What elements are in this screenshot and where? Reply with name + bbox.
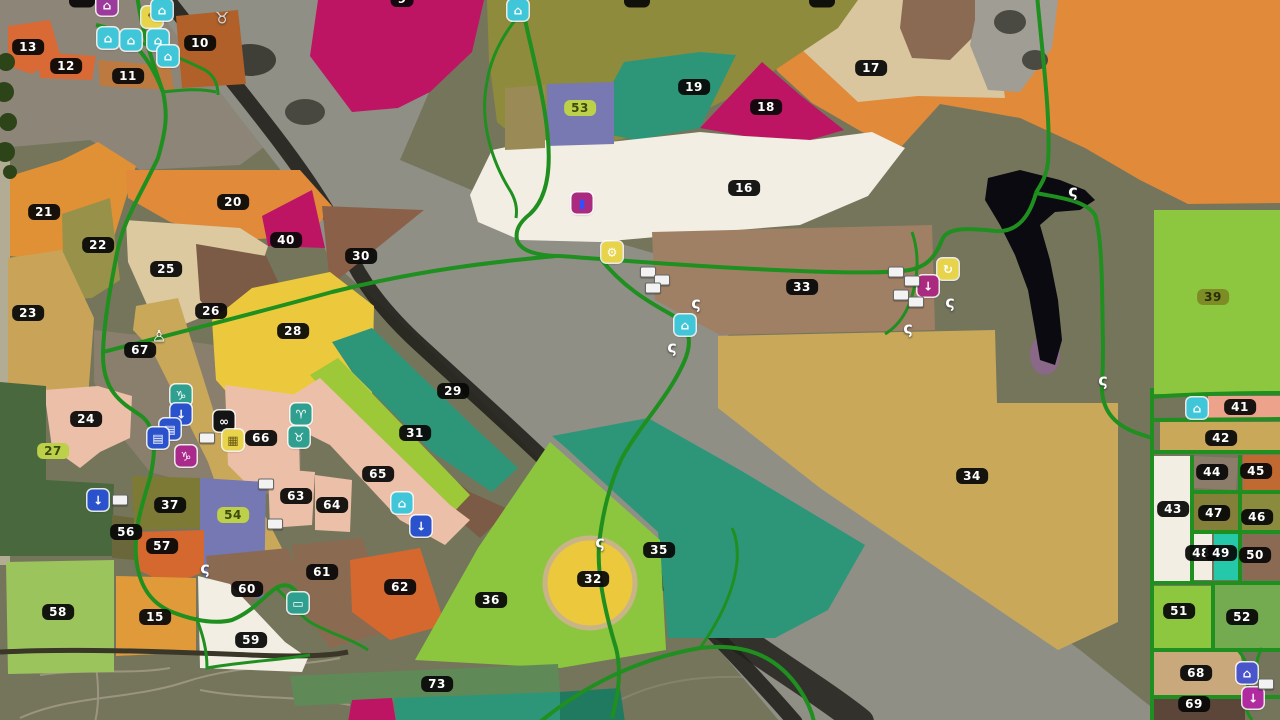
sell-point-icon-glyph: ↓ [923,280,933,292]
field-label-50[interactable]: 50 [1239,547,1271,563]
delivery-point-icon[interactable]: ↓ [411,516,432,537]
player-marker-icon[interactable]: ς [1098,371,1107,390]
road [1150,419,1280,420]
delivery-point-icon[interactable]: ↓ [88,490,109,511]
field-label-9[interactable]: 9 [391,0,414,7]
river-rocks [285,99,325,125]
binoculars-icon[interactable]: ∞ [214,411,235,432]
animal-pen-sheep-icon-glyph: ♈ [296,408,307,420]
reset-icon-glyph: ↻ [943,263,953,275]
greenhouse-icon[interactable]: ⌂ [158,46,179,67]
animal-dealer-icon-glyph: ♑ [181,450,192,462]
field-label-62[interactable]: 62 [384,579,416,595]
animal-pen-cow-icon-glyph: ♉ [294,431,305,443]
fuel-station-icon-glyph: ▮ [579,197,586,209]
farm-map: 9101112131516171819202122232425262728293… [0,0,1280,720]
tractor-station-icon[interactable]: ▭ [288,593,309,614]
field-label-12[interactable]: 12 [50,58,82,74]
field-label-20[interactable]: 20 [217,194,249,210]
field-label-18[interactable]: 18 [750,99,782,115]
field-label-24[interactable]: 24 [70,411,102,427]
vehicle-icon[interactable] [267,519,283,530]
field-label-65[interactable]: 65 [362,466,394,482]
greenhouse-icon[interactable]: ⌂ [98,28,119,49]
greenhouse-icon[interactable]: ⌂ [1187,398,1208,419]
field-label-43[interactable]: 43 [1157,501,1189,517]
field-label-41[interactable]: 41 [1224,399,1256,415]
animal-pen-sheep-icon[interactable]: ♈ [291,404,312,425]
tractor-station-icon-glyph: ▭ [292,597,303,609]
tree [3,165,17,179]
field-label-63[interactable]: 63 [280,488,312,504]
field-label-21[interactable]: 21 [28,204,60,220]
water-station-icon-glyph: ⌂ [1243,667,1252,679]
vehicle-icon[interactable] [258,479,274,490]
field-label-61[interactable]: 61 [306,564,338,580]
unload-point-icon-glyph: ↓ [1248,692,1258,704]
field-label-45[interactable]: 45 [1240,463,1272,479]
player-marker-icon[interactable]: ς [1068,182,1077,201]
field-label-16[interactable]: 16 [728,180,760,196]
vehicle-icon[interactable] [112,495,128,506]
greenhouse-icon-glyph: ⌂ [514,4,523,16]
field-label-11[interactable]: 11 [112,68,144,84]
greenhouse-icon-glyph: ⌂ [398,497,407,509]
player-marker-icon[interactable]: ς [595,533,604,552]
unload-point-icon[interactable]: ↓ [1243,688,1264,709]
field-label-64[interactable]: 64 [316,497,348,513]
field-label-36[interactable]: 36 [475,592,507,608]
animal-pen-cow-icon[interactable]: ♉ [289,427,310,448]
field-label-59[interactable]: 59 [235,632,267,648]
field-label-17[interactable]: 17 [855,60,887,76]
player-marker-icon[interactable]: ς [903,319,912,338]
field-label-26[interactable]: 26 [195,303,227,319]
field-label-30[interactable]: 30 [345,248,377,264]
field-label-cut[interactable] [809,0,835,8]
workshop-icon[interactable]: ⚙ [602,242,623,263]
purple-building-icon-glyph: ⌂ [103,0,112,11]
binoculars-icon-glyph: ∞ [219,415,229,427]
field-label-60[interactable]: 60 [231,581,263,597]
field-label-cut[interactable] [69,0,95,8]
field-label-34[interactable]: 34 [956,468,988,484]
field-label-15[interactable]: 15 [139,609,171,625]
harvester-icon[interactable] [908,297,924,308]
field-label-22[interactable]: 22 [82,237,114,253]
field-label-39[interactable]: 39 [1197,289,1229,305]
field-label-54[interactable]: 54 [217,507,249,523]
field-label-57[interactable]: 57 [146,538,178,554]
greenhouse-icon-glyph: ⌂ [1193,402,1202,414]
field-label-29[interactable]: 29 [437,383,469,399]
harvester-icon[interactable] [904,276,920,287]
delivery-point-icon[interactable]: ▤ [148,428,169,449]
vehicle-icon[interactable] [199,433,215,444]
field-label-66[interactable]: 66 [245,430,277,446]
harvester-icon[interactable] [893,290,909,301]
harvester-icon[interactable] [888,267,904,278]
field-43-area[interactable] [1154,456,1190,584]
field-label-27[interactable]: 27 [37,443,69,459]
field-label-68[interactable]: 68 [1180,665,1212,681]
bale-storage-icon[interactable]: ▦ [223,430,244,451]
production-icon[interactable]: ⌂ [675,315,696,336]
reset-icon[interactable]: ↻ [938,259,959,280]
greenhouse-icon-glyph: ⌂ [158,4,167,16]
animal-dealer-icon[interactable]: ♑ [176,446,197,467]
field-label-44[interactable]: 44 [1196,464,1228,480]
field-label-31[interactable]: 31 [399,425,431,441]
fuel-station-icon[interactable]: ▮ [572,193,593,214]
field-label-28[interactable]: 28 [277,323,309,339]
animal-pen-goat-icon[interactable]: ♑ [171,385,192,406]
greenhouse-icon[interactable]: ⌂ [508,0,529,21]
delivery-point-icon-glyph: ▤ [152,432,163,444]
greenhouse-icon[interactable]: ⌂ [121,30,142,51]
field-label-49[interactable]: 49 [1205,545,1237,561]
greenhouse-icon-glyph: ⌂ [127,34,136,46]
delivery-point-icon-glyph: ↓ [93,494,103,506]
purple-building-icon[interactable]: ⌂ [97,0,118,16]
player-marker-icon[interactable]: ς [667,338,676,357]
field-label-37[interactable]: 37 [154,497,186,513]
terrain-strip-magenta [348,698,396,720]
field-label-42[interactable]: 42 [1205,430,1237,446]
greenhouse-icon[interactable]: ⌂ [392,493,413,514]
field-label-69[interactable]: 69 [1178,696,1210,712]
cow-icon[interactable]: ♉ [215,9,229,28]
player-marker-icon[interactable]: ς [691,294,700,313]
field-label-52[interactable]: 52 [1226,609,1258,625]
field-label-51[interactable]: 51 [1163,603,1195,619]
field-label-33[interactable]: 33 [786,279,818,295]
map-canvas [0,0,1280,720]
field-label-46[interactable]: 46 [1241,509,1273,525]
field-label-53[interactable]: 53 [564,100,596,116]
field-label-40[interactable]: 40 [270,232,302,248]
harvester-icon[interactable] [1258,679,1274,690]
field-label-23[interactable]: 23 [12,305,44,321]
player-marker-icon[interactable]: ς [200,559,209,578]
field-label-25[interactable]: 25 [150,261,182,277]
water-station-icon[interactable]: ⌂ [1237,663,1258,684]
workshop-icon-glyph: ⚙ [607,246,618,258]
field-label-13[interactable]: 13 [12,39,44,55]
field-label-10[interactable]: 10 [184,35,216,51]
field-label-56[interactable]: 56 [110,524,142,540]
sell-point-icon[interactable]: ↓ [918,276,939,297]
bale-storage-icon-glyph: ▦ [227,434,238,446]
delivery-point-icon-glyph: ↓ [416,520,426,532]
production-icon-glyph: ⌂ [681,319,690,331]
field-label-35[interactable]: 35 [643,542,675,558]
hen-icon[interactable]: ♙ [152,327,166,346]
greenhouse-icon-glyph: ⌂ [164,50,173,62]
animal-pen-goat-icon-glyph: ♑ [176,389,187,401]
field-label-47[interactable]: 47 [1198,505,1230,521]
field-label-cut[interactable] [624,0,650,8]
field-label-58[interactable]: 58 [42,604,74,620]
greenhouse-icon-glyph: ⌂ [154,34,163,46]
greenhouse-icon[interactable]: ⌂ [152,0,173,21]
vehicle-icon[interactable] [645,283,661,294]
player-marker-icon[interactable]: ς [945,293,954,312]
greenhouse-icon-glyph: ⌂ [104,32,113,44]
field-label-19[interactable]: 19 [678,79,710,95]
field-label-73[interactable]: 73 [421,676,453,692]
field-label-32[interactable]: 32 [577,571,609,587]
terrain-plot [505,85,545,150]
rock [994,10,1026,34]
